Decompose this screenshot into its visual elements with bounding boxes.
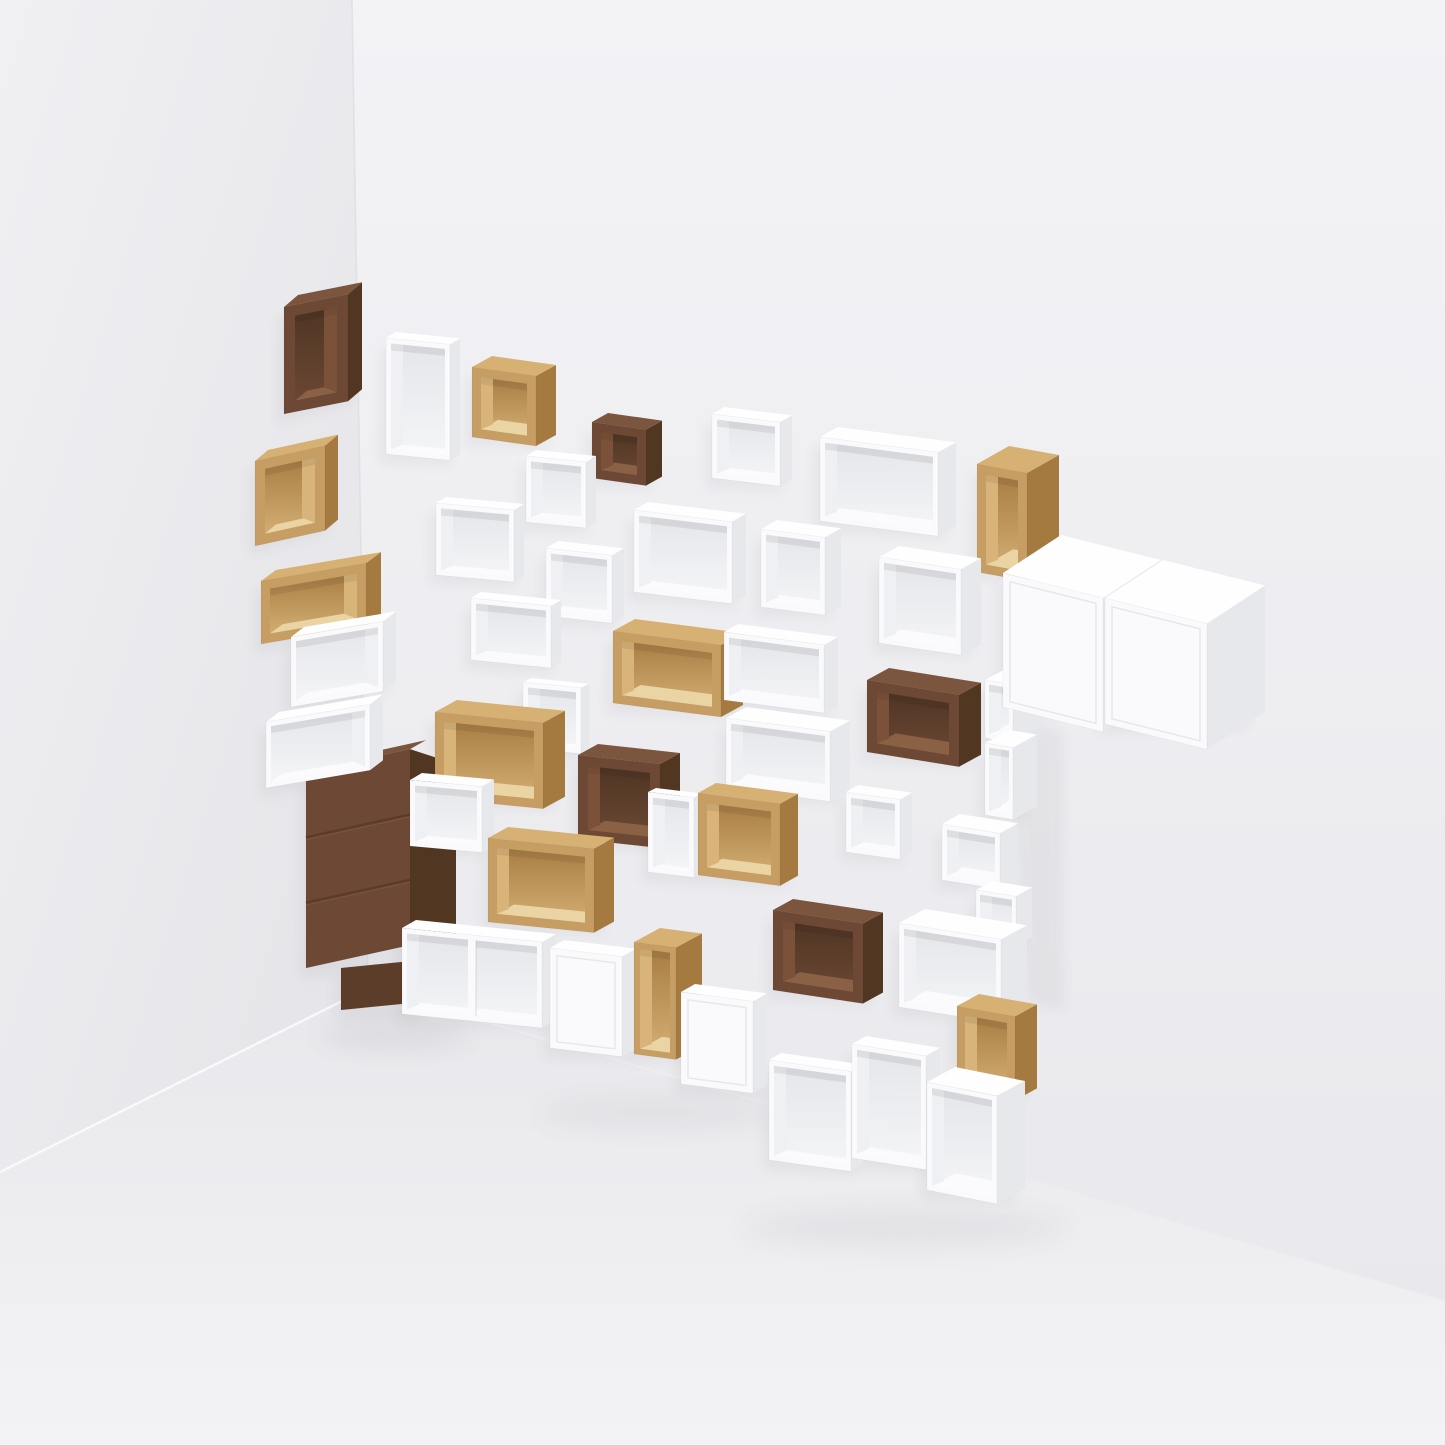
open-box-white-narrow: [648, 788, 702, 878]
scene-svg: [0, 0, 1445, 1445]
open-box-white-bottom-double: [402, 920, 556, 1028]
open-box-white-g1: [769, 1053, 863, 1172]
open-box-white-r3-1: [471, 592, 561, 668]
box-side-face: [383, 611, 396, 691]
box-side-face: [348, 282, 362, 401]
box-side-face: [1000, 823, 1018, 889]
open-box-white-g3: [927, 1067, 1025, 1204]
box-side-face: [959, 683, 981, 767]
box-inner-side: [932, 1083, 944, 1186]
box-side-face: [825, 528, 841, 615]
open-box-walnut-bottom: [773, 899, 883, 1004]
box-inner-side: [986, 470, 998, 565]
box-side-face: [370, 694, 383, 770]
box-inner-side: [774, 1061, 786, 1156]
open-box-oak-r5: [488, 827, 614, 933]
box-side-face: [536, 365, 556, 446]
open-box-white-r2-5: [761, 520, 841, 615]
open-box-walnut-topleft: [284, 282, 362, 414]
box-side-face: [732, 514, 746, 604]
open-box-white-r3-2: [724, 624, 838, 713]
box-side-face: [586, 456, 596, 528]
open-box-white-r2-4: [634, 502, 746, 604]
open-box-white-r2-2: [436, 497, 524, 582]
box-side-face: [646, 421, 662, 486]
box-side-face: [753, 993, 767, 1093]
box-side-face: [863, 913, 883, 1004]
open-box-white-r2-6: [879, 546, 981, 655]
box-divider: [468, 940, 476, 1017]
box-front-face: [1105, 598, 1207, 750]
box-side-face: [938, 442, 956, 536]
open-box-oak-mid-wide: [613, 619, 743, 717]
box-side-face: [900, 793, 912, 860]
box-side-face: [325, 435, 338, 531]
open-box-oak-top: [472, 356, 556, 446]
open-box-oak-cube-mid: [698, 783, 798, 886]
open-box-white-small-top: [712, 407, 792, 486]
box-side-face: [961, 558, 981, 655]
open-box-white-r4-3: [846, 785, 912, 860]
box-side-face: [514, 504, 524, 582]
door-cube-white-bottom-2: [681, 984, 767, 1093]
open-box-walnut-mid-wide: [867, 668, 981, 767]
closed-cube-white-big-right: [1105, 560, 1265, 750]
box-side-face: [594, 838, 614, 933]
open-box-white-r4-4: [410, 773, 494, 853]
box-side-face: [581, 684, 589, 754]
box-side-face: [612, 548, 624, 623]
box-side-face: [780, 415, 792, 486]
cubby-column-2: [985, 730, 1037, 820]
box-side-face: [780, 794, 798, 886]
box-inner-side: [857, 1045, 869, 1154]
box-side-face: [830, 721, 850, 802]
box-side-face: [1013, 735, 1037, 820]
box-side-face: [450, 338, 460, 460]
box-front-face: [1003, 573, 1103, 732]
box-side-face: [824, 637, 838, 713]
open-box-walnut-small-top: [592, 413, 662, 486]
box-inner-side: [391, 339, 403, 450]
open-box-white-tall-top: [386, 332, 460, 460]
box-front-face: [550, 948, 622, 1057]
cubby-column-3: [942, 814, 1018, 889]
open-box-white-r2-1: [526, 450, 596, 528]
box-side-face: [551, 600, 561, 668]
box-front-face: [306, 749, 410, 968]
open-box-oak-left-cube: [255, 435, 338, 546]
open-box-white-wide-top: [820, 427, 956, 536]
box-inner-side: [640, 944, 652, 1049]
box-side-face: [997, 1081, 1025, 1204]
door-cube-white-bottom-1: [550, 940, 636, 1057]
corner-shelving-render: [0, 0, 1445, 1445]
box-side-face: [543, 711, 565, 809]
